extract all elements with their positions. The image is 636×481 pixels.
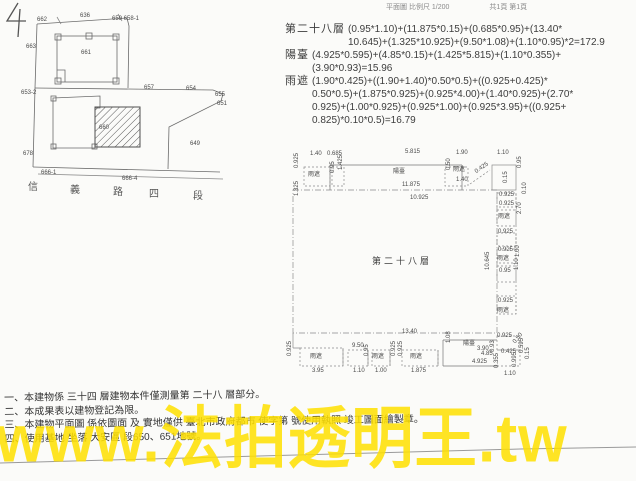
header-page-count: 共1頁 第1頁 — [489, 2, 527, 12]
street-name-char: 段 — [193, 194, 203, 200]
calc-entry: 陽臺 (4.925*0.595)+(4.85*0.15)+(1.425*5.81… — [285, 49, 635, 75]
dimension-label: 0.925 — [287, 341, 293, 356]
dimension-label: 0.93 — [490, 340, 496, 352]
dimension-label: 0.925 — [498, 229, 513, 235]
dimension-label: 0.355 — [494, 353, 500, 368]
parcel-number: 666-1 — [41, 170, 56, 176]
dimension-label: 1.08 — [446, 331, 452, 343]
calc-entry-formula: (1.90*0.425)+((1.90+1.40)*0.50*0.5)+((0.… — [312, 75, 635, 127]
calc-entry-label: 雨遮 — [285, 75, 309, 88]
parcel-number: 654 — [186, 86, 196, 92]
dimension-label: 0.50 — [446, 158, 452, 170]
calc-entry: 第二十八層 (0.95*1.10)+(11.875*0.15)+(0.685*0… — [285, 23, 635, 49]
dimension-label: 雨遮 — [310, 354, 322, 360]
watermark: www.法拍透明王.tw — [0, 384, 568, 481]
dimension-label: 雨遮 — [497, 256, 509, 262]
dimension-label: 0.15 — [503, 171, 509, 183]
parcel-number: 653-2 — [21, 90, 36, 96]
dimension-label: 雨遮 — [453, 167, 465, 173]
dimension-label: 3.95 — [312, 368, 324, 374]
dimension-label: 1.40 — [310, 151, 322, 157]
page-corner-mark — [3, 0, 33, 40]
parcel-number: 649 — [190, 141, 200, 147]
dimension-label: 1.00 — [515, 245, 521, 257]
area-calculations: 第二十八層 (0.95*1.10)+(11.875*0.15)+(0.685*0… — [285, 23, 635, 127]
dimension-label: 1.10 — [504, 371, 516, 377]
dimension-label: 9.50 — [352, 343, 364, 349]
parcel-number: 678 — [23, 151, 33, 157]
dimension-label: 1.10 — [514, 258, 520, 270]
dimension-label: 1.00 — [375, 368, 387, 374]
dimension-label: 11.875 — [402, 182, 420, 188]
dimension-label: 雨遮 — [498, 214, 510, 220]
dimension-label: 0.425 — [474, 161, 490, 175]
street-name-char: 義 — [70, 188, 80, 194]
dimension-label: 0.925 — [498, 247, 513, 253]
dimension-label: 5.815 — [405, 149, 420, 155]
room-label: 第二十八層 — [372, 258, 432, 264]
street-name-char: 四 — [149, 192, 159, 198]
header: 平面圖 比例尺 1/200 共1頁 第1頁 — [386, 2, 527, 12]
parcel-number: 651 — [217, 101, 227, 107]
header-scale-text: 平面圖 比例尺 1/200 — [386, 2, 449, 12]
dimension-label: 1.10 — [353, 368, 365, 374]
dimension-label: 0.95 — [330, 161, 336, 173]
dimension-label: 雨遮 — [308, 172, 320, 178]
dimension-label: 0.925 — [391, 341, 397, 356]
dimension-label: 4.925 — [472, 359, 487, 365]
dimension-label: 2.70 — [517, 202, 523, 214]
site-plan-drawing — [33, 14, 223, 179]
dimension-label: 0.925 — [499, 192, 514, 198]
dimension-label: 陽臺 — [463, 341, 475, 347]
calc-entry-label: 陽臺 — [285, 49, 309, 62]
dimension-label: 10.925 — [410, 195, 428, 201]
dimension-label: 1.875 — [411, 368, 426, 374]
street-name-char: 路 — [113, 190, 123, 196]
dimension-label: 10.645 — [485, 252, 491, 270]
parcel-number: 636 — [80, 13, 90, 19]
dimension-label: 雨遮 — [410, 354, 422, 360]
dimension-label: 0.95 — [499, 268, 511, 274]
parcel-number: 659 658-1 — [112, 16, 139, 22]
calc-entry-label: 第二十八層 — [285, 23, 345, 36]
dimension-label: 1.40 — [456, 177, 468, 183]
dimension-label: 0.95 — [517, 156, 523, 168]
dimension-label: 0.10 — [522, 182, 528, 194]
dimension-label: 雨遮 — [372, 354, 384, 360]
dimension-label: 0.925 — [294, 153, 300, 168]
dimension-label: 1.325 — [294, 181, 300, 196]
dimension-label: 13.40 — [402, 329, 417, 335]
dimension-label: 0.15 — [525, 347, 531, 359]
dimension-label: 1.90 — [456, 150, 468, 156]
dimension-label: 雨遮 — [497, 308, 509, 314]
parcel-number: 661 — [81, 50, 91, 56]
dimension-label: 陽臺 — [393, 169, 405, 175]
dimension-label: 0.925 — [499, 201, 514, 207]
calc-entry-formula: (0.95*1.10)+(11.875*0.15)+(0.685*0.95)+(… — [348, 23, 635, 49]
parcel-number: 657 — [144, 85, 154, 91]
parcel-number: 666-4 — [122, 176, 137, 182]
parcel-number: 662 — [37, 17, 47, 23]
parcel-number: 655 — [215, 92, 225, 98]
calc-entry: 雨遮 (1.90*0.425)+((1.90+1.40)*0.50*0.5)+(… — [285, 75, 635, 127]
dimension-label: 1.425 — [338, 155, 344, 170]
dimension-label: 0.925 — [497, 333, 512, 339]
dimension-label: 0.995 — [512, 352, 518, 367]
parcel-number: 660 — [99, 125, 109, 131]
dimension-label: 0.925 — [498, 298, 513, 304]
calc-entry-formula: (4.925*0.595)+(4.85*0.15)+(1.425*5.815)+… — [312, 49, 635, 75]
dimension-label: 1.10 — [497, 150, 509, 156]
dimension-label: 0.925 — [398, 341, 404, 356]
parcel-number: 663 — [26, 44, 36, 50]
street-name-char: 信 — [28, 185, 38, 191]
dimension-label: 0.95 — [364, 344, 370, 356]
